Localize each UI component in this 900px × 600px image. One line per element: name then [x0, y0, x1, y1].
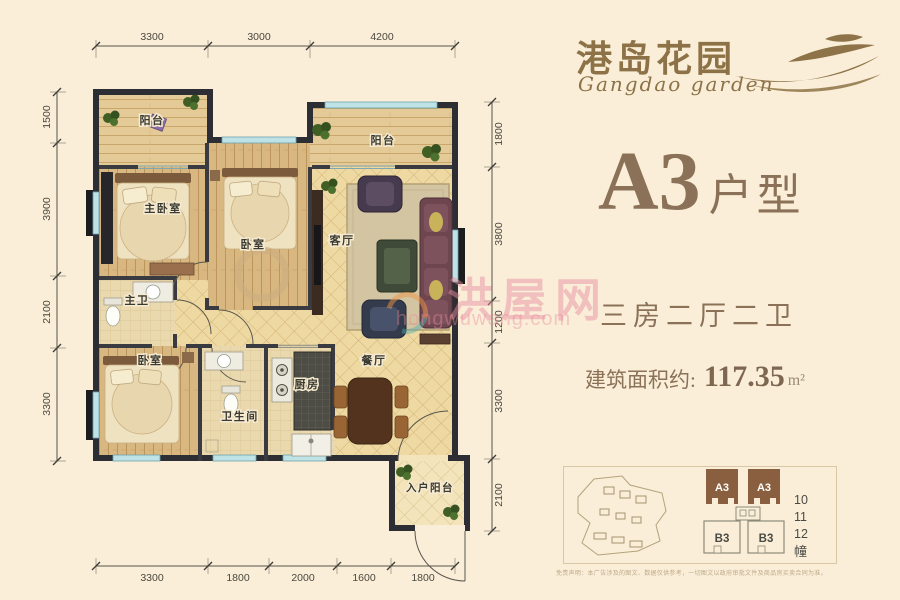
- room-label-master-bath: 主卫: [125, 293, 150, 307]
- dim-top-1: 3300: [140, 31, 164, 43]
- room-label-bathroom: 卫生间: [221, 409, 259, 423]
- room-label-living-room: 客厅: [329, 233, 355, 247]
- site-map-box: A3 A3 B3 B3 10 11 12 幢: [563, 466, 837, 564]
- dim-right-3: 1200: [493, 310, 505, 334]
- tower-b3-1: B3: [715, 533, 730, 545]
- area-unit: m²: [788, 371, 805, 392]
- room-label-master-bedroom: 主卧室: [144, 201, 182, 215]
- dim-right-1: 1800: [493, 122, 505, 146]
- dim-right-2: 3800: [493, 222, 505, 246]
- site-map-drawing: A3 A3 B3 B3 10 11 12 幢: [564, 467, 836, 563]
- dim-left-3: 2100: [41, 300, 53, 324]
- tower-a3-2: A3: [757, 482, 771, 494]
- room-label-dining: 餐厅: [361, 353, 387, 367]
- area-value: 117.35: [704, 362, 785, 392]
- disclaimer-text: 免责声明：本广告涉及的图文、数据仅供参考，一切图文以政府审批文件及商品房买卖合同…: [556, 568, 892, 577]
- floorplan-advert-page: 阳台 主卧室 卧室 阳台 客厅 主卫 卧室 卫生间 厨房 餐厅 入户阳台: [0, 0, 900, 600]
- building-number-10: 10: [794, 493, 808, 507]
- dim-right-5: 2100: [493, 483, 505, 507]
- area-line: 建筑面积约: 117.35 m²: [585, 362, 805, 392]
- dim-bottom-4: 1600: [352, 572, 376, 584]
- logo-swoosh-icon: [733, 32, 888, 94]
- unit-type-suffix: 户型: [709, 174, 805, 218]
- rooms-description: 三房二厅二卫: [600, 294, 798, 333]
- dim-left-4: 3300: [41, 392, 53, 416]
- dim-bottom-3: 2000: [291, 572, 315, 584]
- building-unit-suffix: 幢: [794, 544, 807, 559]
- dim-right-4: 3300: [493, 389, 505, 413]
- floorplan-drawing: 阳台 主卧室 卧室 阳台 客厅 主卫 卧室 卫生间 厨房 餐厅 入户阳台: [0, 0, 560, 600]
- unit-title: A3 户型: [598, 140, 805, 224]
- dim-top-2: 3000: [247, 31, 271, 43]
- room-label-balcony-tl: 阳台: [140, 113, 165, 127]
- tower-labels: A3 A3 B3 B3: [715, 482, 774, 545]
- unit-code: A3: [598, 140, 701, 224]
- building-number-11: 11: [794, 510, 807, 524]
- room-label-entry-balcony: 入户阳台: [406, 481, 454, 494]
- dim-bottom-1: 3300: [140, 572, 164, 584]
- site-outline: [578, 476, 666, 555]
- room-label-kitchen: 厨房: [295, 377, 320, 391]
- room-label-bedroom-mid: 卧室: [241, 237, 266, 251]
- dim-left-1: 1500: [41, 105, 53, 129]
- building-numbers: 10 11 12 幢: [794, 493, 808, 559]
- dim-left-2: 3900: [41, 197, 53, 221]
- area-label: 建筑面积约:: [585, 369, 696, 392]
- tower-b3-2: B3: [759, 533, 774, 545]
- building-number-12: 12: [794, 527, 808, 541]
- dim-top-3: 4200: [370, 31, 394, 43]
- dim-bottom-2: 1800: [226, 572, 250, 584]
- tower-a3-1: A3: [715, 482, 729, 494]
- room-label-balcony-tr: 阳台: [371, 133, 396, 147]
- dim-bottom-5: 1800: [411, 572, 435, 584]
- room-label-bedroom-bl: 卧室: [138, 353, 163, 367]
